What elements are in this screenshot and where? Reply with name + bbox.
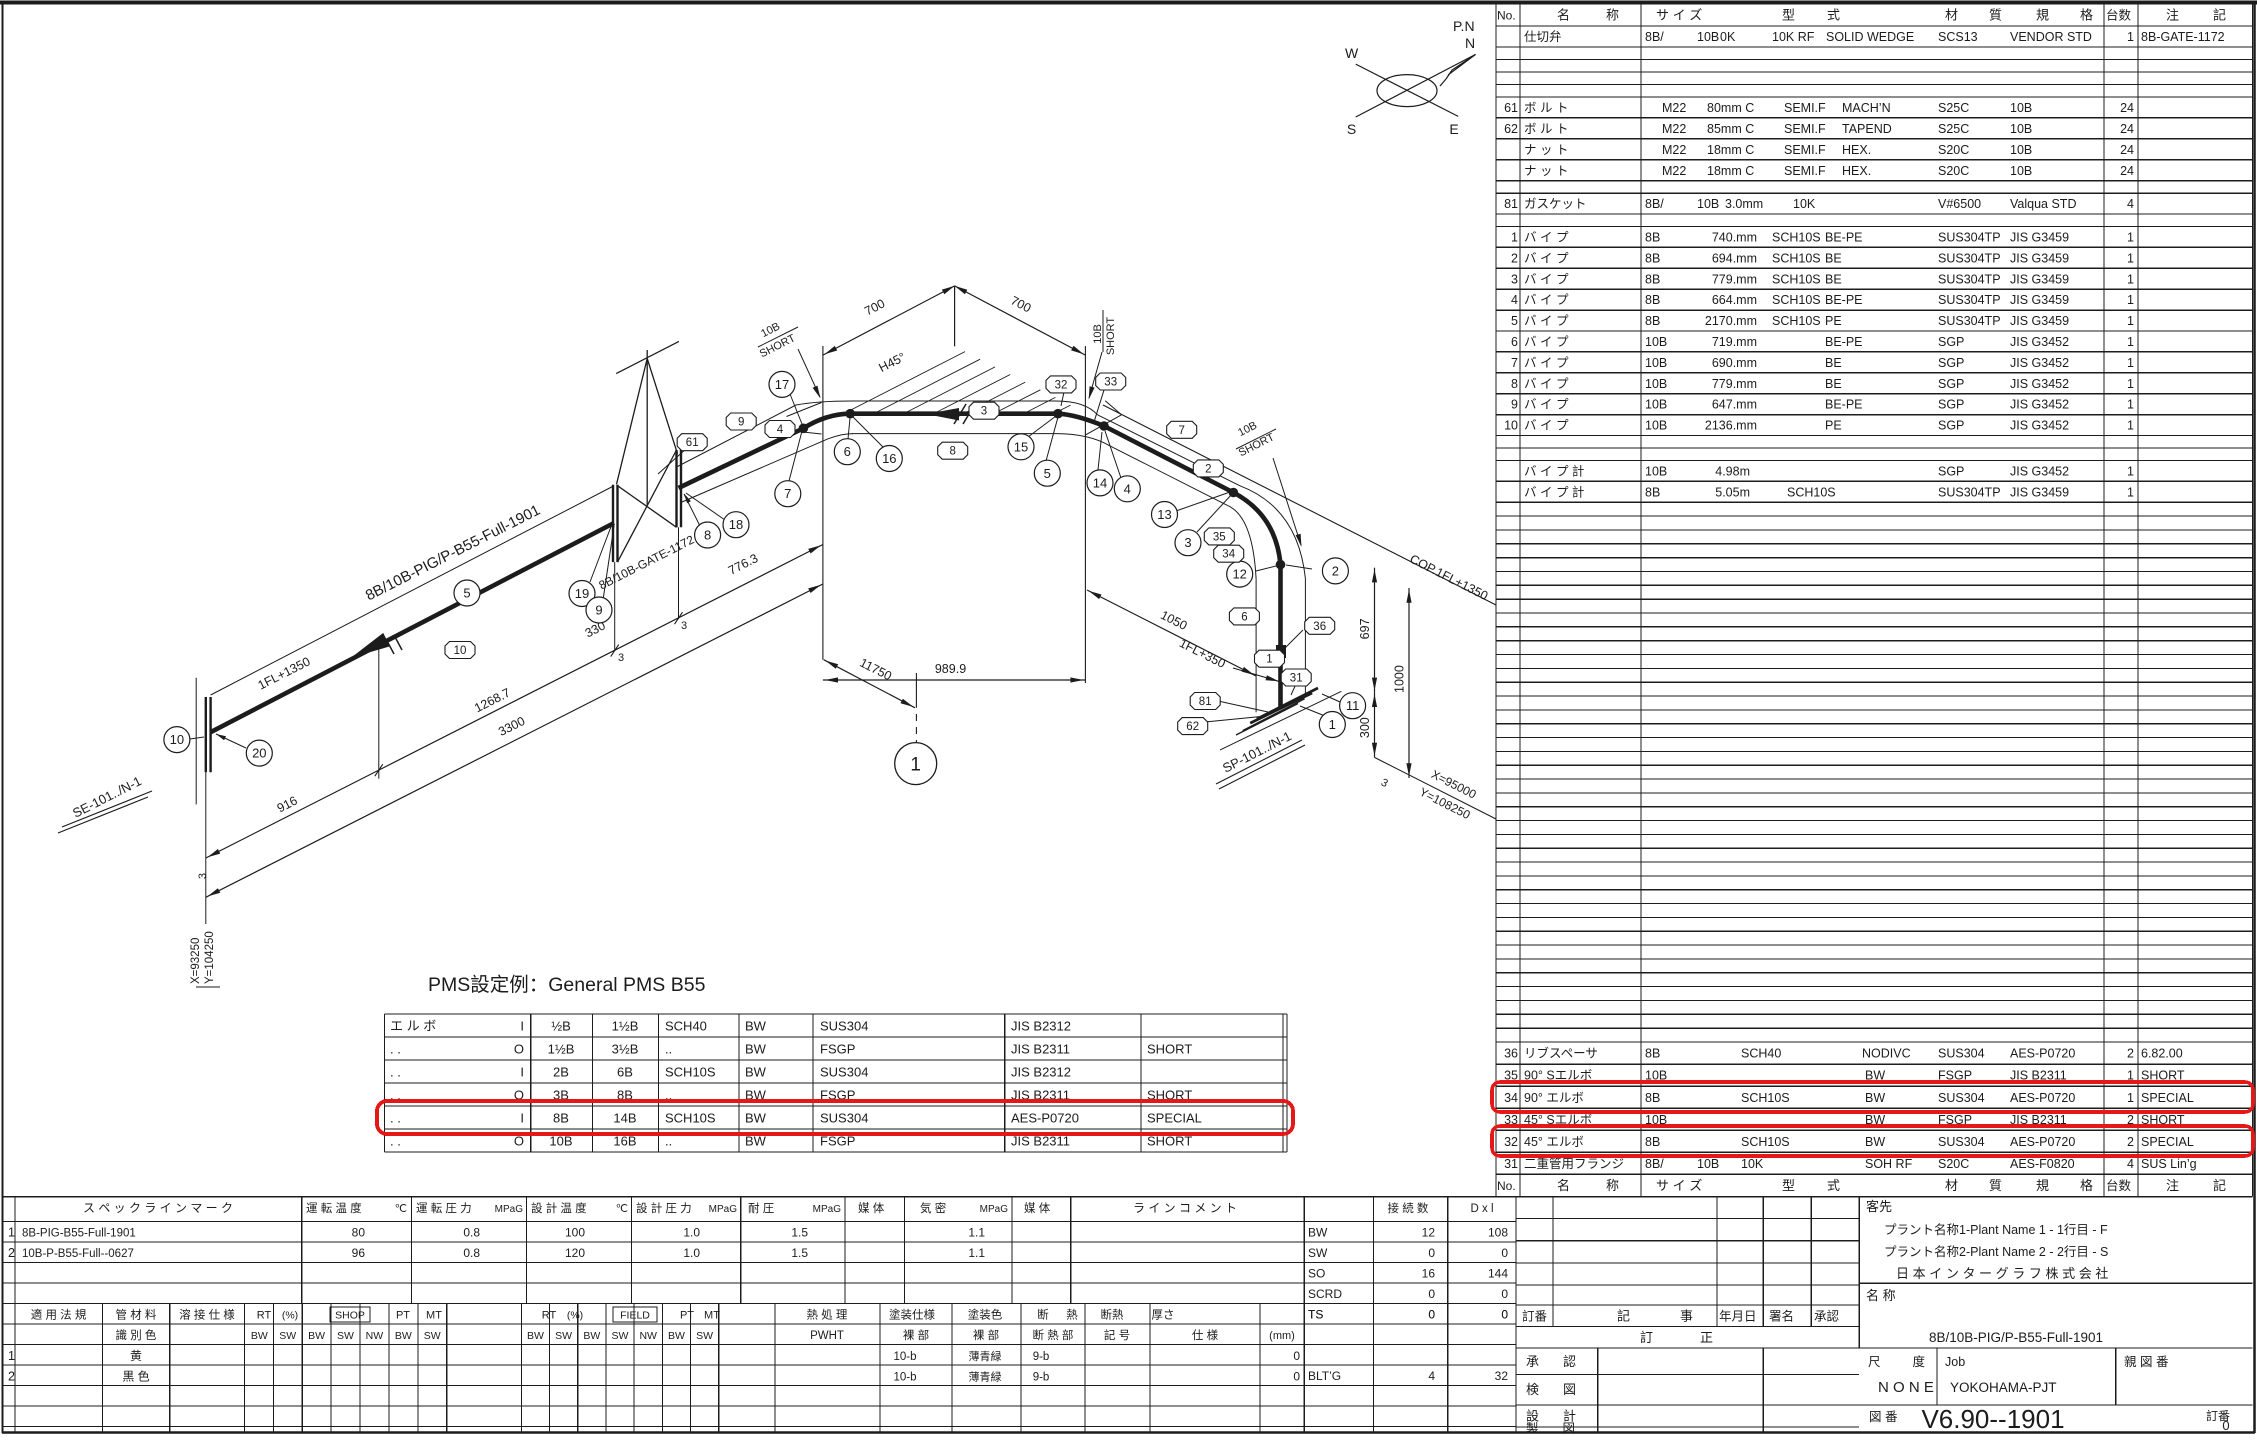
svg-text:O: O xyxy=(514,1042,524,1057)
svg-text:1: 1 xyxy=(2127,314,2134,328)
svg-text:3.0mm: 3.0mm xyxy=(1725,197,1763,211)
svg-text:型: 型 xyxy=(1782,1178,1795,1193)
svg-text:96: 96 xyxy=(352,1246,366,1260)
svg-text:0: 0 xyxy=(1293,1349,1300,1363)
svg-text:尺: 尺 xyxy=(1868,1355,1881,1369)
svg-text:1: 1 xyxy=(2127,335,2134,349)
svg-text:記: 記 xyxy=(2213,8,2226,23)
svg-text:1: 1 xyxy=(2127,293,2134,307)
svg-text:0: 0 xyxy=(1501,1246,1508,1260)
svg-text:8B/10B-PIG/P-B55-Full-1901: 8B/10B-PIG/P-B55-Full-1901 xyxy=(1929,1330,2103,1345)
svg-text:18mm C: 18mm C xyxy=(1707,143,1754,157)
svg-text:M22: M22 xyxy=(1662,164,1686,178)
svg-text:2: 2 xyxy=(2127,1047,2134,1061)
svg-text:BE: BE xyxy=(1825,252,1842,266)
svg-text:格: 格 xyxy=(2080,1178,2093,1193)
svg-text:D x l: D x l xyxy=(1471,1203,1494,1215)
svg-text:JIS G3459: JIS G3459 xyxy=(2010,314,2069,328)
svg-text:SCH10S: SCH10S xyxy=(1787,485,1836,499)
svg-text:運 転 温 度: 運 転 温 度 xyxy=(306,1201,362,1215)
svg-text:SGP: SGP xyxy=(1938,465,1964,479)
svg-text:2: 2 xyxy=(8,1370,15,1384)
svg-text:日 本 イ ン タ ー グ ラ フ 株 式 会 社: 日 本 イ ン タ ー グ ラ フ 株 式 会 社 xyxy=(1896,1266,2108,1281)
svg-text:BW: BW xyxy=(745,1065,767,1080)
svg-text:32: 32 xyxy=(1495,1369,1509,1383)
svg-text:34: 34 xyxy=(1504,1091,1518,1105)
svg-text:Y=104250: Y=104250 xyxy=(204,931,216,984)
svg-text:MACH’N: MACH’N xyxy=(1842,101,1891,115)
svg-text:8B-GATE-1172: 8B-GATE-1172 xyxy=(2141,30,2225,44)
svg-text:BW: BW xyxy=(745,1042,767,1057)
svg-text:MT: MT xyxy=(704,1310,720,1322)
svg-text:JIS G3459: JIS G3459 xyxy=(2010,485,2069,499)
svg-text:BE-PE: BE-PE xyxy=(1825,231,1863,245)
svg-text:5: 5 xyxy=(463,586,470,601)
svg-text:8B: 8B xyxy=(1645,1047,1660,1061)
svg-text:10B: 10B xyxy=(2010,101,2032,115)
svg-text:バ イ プ 計: バ イ プ 計 xyxy=(1524,464,1584,479)
svg-text:S25C: S25C xyxy=(1938,101,1969,115)
svg-text:S: S xyxy=(1347,121,1356,137)
svg-text:I: I xyxy=(520,1111,524,1126)
svg-text:10: 10 xyxy=(1504,419,1518,433)
svg-text:1: 1 xyxy=(2127,377,2134,391)
svg-text:300: 300 xyxy=(1358,717,1372,738)
svg-text:FIELD: FIELD xyxy=(620,1310,650,1322)
svg-text:FSGP: FSGP xyxy=(820,1042,855,1057)
svg-text:1: 1 xyxy=(2127,30,2134,44)
svg-text:..: .. xyxy=(665,1042,672,1057)
svg-text:1: 1 xyxy=(2127,272,2134,286)
svg-text:1.0: 1.0 xyxy=(683,1226,700,1240)
svg-text:ガスケット: ガスケット xyxy=(1524,197,1587,211)
svg-text:V6.90--1901: V6.90--1901 xyxy=(1921,1404,2064,1434)
svg-text:36: 36 xyxy=(1313,621,1326,633)
svg-text:8B/: 8B/ xyxy=(1645,30,1664,44)
svg-text:バ イ プ: バ イ プ xyxy=(1524,356,1569,370)
svg-text:P.N: P.N xyxy=(1453,18,1475,34)
svg-text:. .: . . xyxy=(390,1111,401,1126)
svg-text:材: 材 xyxy=(1945,8,1958,23)
svg-text:記: 記 xyxy=(1617,1309,1630,1324)
svg-text:認: 認 xyxy=(1563,1354,1576,1369)
svg-text:Job: Job xyxy=(1945,1355,1965,1369)
svg-text:M22: M22 xyxy=(1662,143,1686,157)
svg-text:BE-PE: BE-PE xyxy=(1825,398,1863,412)
svg-text:X=93250: X=93250 xyxy=(190,938,202,984)
svg-text:24: 24 xyxy=(2120,164,2134,178)
svg-text:SUS304TP: SUS304TP xyxy=(1938,272,2001,286)
svg-text:18mm C: 18mm C xyxy=(1707,164,1754,178)
svg-text:BW: BW xyxy=(1308,1226,1328,1240)
svg-text:台数: 台数 xyxy=(2106,1178,2132,1193)
svg-text:SEMI.F: SEMI.F xyxy=(1784,122,1826,136)
svg-text:2: 2 xyxy=(2127,1135,2134,1149)
svg-text:SUS304: SUS304 xyxy=(820,1019,868,1034)
svg-text:14: 14 xyxy=(1093,475,1107,490)
svg-text:黄: 黄 xyxy=(130,1349,142,1363)
svg-text:名: 名 xyxy=(1557,8,1570,23)
svg-text:8: 8 xyxy=(704,528,711,543)
svg-text:1: 1 xyxy=(910,755,921,776)
svg-text:事: 事 xyxy=(1680,1309,1693,1324)
svg-text:34: 34 xyxy=(1222,549,1235,561)
svg-text:1: 1 xyxy=(8,1349,15,1363)
svg-text:エ ル ボ: エ ル ボ xyxy=(390,1019,436,1034)
svg-text:2170.mm: 2170.mm xyxy=(1705,314,1757,328)
svg-text:3: 3 xyxy=(1511,272,1518,286)
svg-text:694.mm: 694.mm xyxy=(1712,252,1757,266)
svg-text:識 別 色: 識 別 色 xyxy=(116,1328,157,1342)
svg-text:0K: 0K xyxy=(1720,30,1736,44)
svg-text:SGP: SGP xyxy=(1938,398,1964,412)
svg-text:ボ ル ト: ボ ル ト xyxy=(1524,122,1568,136)
svg-text:YOKOHAMA-PJT: YOKOHAMA-PJT xyxy=(1950,1380,2057,1395)
svg-text:1: 1 xyxy=(2127,419,2134,433)
svg-text:JIS B2312: JIS B2312 xyxy=(1011,1019,1071,1034)
svg-text:図: 図 xyxy=(1562,1422,1575,1436)
svg-text:0: 0 xyxy=(2222,1418,2229,1433)
svg-text:SEMI.F: SEMI.F xyxy=(1784,143,1826,157)
svg-text:BE: BE xyxy=(1825,272,1842,286)
svg-text:10K: 10K xyxy=(1741,1157,1764,1171)
svg-text:0.8: 0.8 xyxy=(463,1246,480,1260)
svg-text:5: 5 xyxy=(1511,314,1518,328)
svg-text:PT: PT xyxy=(396,1310,410,1322)
svg-text:24: 24 xyxy=(2120,101,2134,115)
svg-text:8: 8 xyxy=(1511,377,1518,391)
svg-text:BW: BW xyxy=(668,1330,685,1342)
svg-text:JIS B2312: JIS B2312 xyxy=(1011,1065,1071,1080)
svg-text:NW: NW xyxy=(366,1330,384,1342)
svg-text:SHORT: SHORT xyxy=(1147,1042,1192,1057)
svg-text:SGP: SGP xyxy=(1938,335,1964,349)
svg-text:AES-P0720: AES-P0720 xyxy=(1011,1111,1079,1126)
svg-text:SCH40: SCH40 xyxy=(1741,1047,1781,1061)
svg-text:3: 3 xyxy=(618,652,624,664)
svg-text:規: 規 xyxy=(2036,8,2049,23)
svg-text:BW: BW xyxy=(527,1330,544,1342)
svg-text:SW: SW xyxy=(424,1330,441,1342)
svg-text:10-b: 10-b xyxy=(893,1351,916,1363)
svg-text:HEX.: HEX. xyxy=(1842,143,1871,157)
svg-text:℃: ℃ xyxy=(616,1203,628,1215)
svg-text:SW: SW xyxy=(696,1330,713,1342)
svg-text:SCS13: SCS13 xyxy=(1938,30,1978,44)
svg-text:媒 体: 媒 体 xyxy=(1024,1201,1051,1215)
svg-text:6: 6 xyxy=(844,444,851,459)
svg-text:I: I xyxy=(520,1065,524,1080)
svg-text:8B: 8B xyxy=(1645,231,1660,245)
svg-text:1½B: 1½B xyxy=(548,1042,575,1057)
svg-text:0: 0 xyxy=(1428,1287,1435,1301)
svg-text:承認: 承認 xyxy=(1814,1309,1840,1324)
svg-text:100: 100 xyxy=(565,1226,585,1240)
svg-text:E: E xyxy=(1449,121,1458,137)
svg-text:PE: PE xyxy=(1825,314,1842,328)
svg-text:85mm C: 85mm C xyxy=(1707,122,1754,136)
svg-text:31: 31 xyxy=(1290,673,1303,685)
svg-text:8B-PIG-B55-Full-1901: 8B-PIG-B55-Full-1901 xyxy=(22,1228,136,1240)
svg-text:1: 1 xyxy=(1266,654,1272,666)
svg-text:PE: PE xyxy=(1825,419,1842,433)
svg-text:規: 規 xyxy=(2036,1178,2049,1193)
svg-text:HEX.: HEX. xyxy=(1842,164,1871,178)
svg-text:SHORT: SHORT xyxy=(1105,317,1117,356)
svg-text:SEMI.F: SEMI.F xyxy=(1784,101,1826,115)
svg-text:JIS G3459: JIS G3459 xyxy=(2010,252,2069,266)
svg-text:1.0: 1.0 xyxy=(683,1246,700,1260)
svg-text:697: 697 xyxy=(1358,618,1372,639)
svg-text:度: 度 xyxy=(1912,1354,1925,1369)
svg-text:14B: 14B xyxy=(613,1111,636,1126)
svg-text:塗装色: 塗装色 xyxy=(968,1308,1003,1322)
svg-text:承: 承 xyxy=(1526,1354,1539,1369)
svg-text:17: 17 xyxy=(775,377,789,392)
svg-text:80: 80 xyxy=(352,1226,366,1240)
svg-text:8B: 8B xyxy=(1645,1091,1660,1105)
svg-text:SPECIAL: SPECIAL xyxy=(2141,1135,2194,1149)
svg-text:MPaG: MPaG xyxy=(813,1204,842,1215)
svg-text:1½B: 1½B xyxy=(612,1019,639,1034)
svg-text:検: 検 xyxy=(1526,1382,1539,1397)
svg-text:製: 製 xyxy=(1526,1422,1539,1436)
svg-text:35: 35 xyxy=(1213,531,1226,543)
svg-text:4: 4 xyxy=(2127,1157,2134,1171)
svg-text:10B: 10B xyxy=(1092,324,1104,344)
svg-text:図 番: 図 番 xyxy=(1869,1410,1898,1424)
svg-text:断 熱 部: 断 熱 部 xyxy=(1033,1328,1074,1342)
svg-text:適 用 法 規: 適 用 法 規 xyxy=(31,1308,87,1322)
svg-text:BW: BW xyxy=(1865,1135,1885,1149)
svg-text:2: 2 xyxy=(1205,463,1211,475)
svg-text:3: 3 xyxy=(981,406,987,418)
svg-text:. .: . . xyxy=(390,1042,401,1057)
svg-text:SCH10S: SCH10S xyxy=(1772,231,1821,245)
svg-text:気 密: 気 密 xyxy=(920,1201,946,1215)
svg-text:6B: 6B xyxy=(617,1065,633,1080)
svg-text:10B: 10B xyxy=(1645,465,1667,479)
svg-text:接 続 数: 接 続 数 xyxy=(1388,1201,1429,1215)
svg-text:JIS G3452: JIS G3452 xyxy=(2010,465,2069,479)
svg-text:. .: . . xyxy=(390,1065,401,1080)
svg-text:0: 0 xyxy=(1428,1308,1435,1322)
svg-text:108: 108 xyxy=(1488,1226,1508,1240)
svg-text:13: 13 xyxy=(1157,507,1171,522)
svg-text:型: 型 xyxy=(1782,8,1795,23)
svg-text:℃: ℃ xyxy=(395,1203,407,1215)
svg-text:3: 3 xyxy=(1184,535,1191,550)
svg-text:訂番: 訂番 xyxy=(1522,1309,1548,1324)
svg-text:NODIVC: NODIVC xyxy=(1862,1047,1911,1061)
svg-text:32: 32 xyxy=(1504,1135,1518,1149)
svg-text:10B: 10B xyxy=(1645,377,1667,391)
svg-text:ラ イ ン コ メ ン ト: ラ イ ン コ メ ン ト xyxy=(1133,1201,1237,1215)
svg-text:90° エルボ: 90° エルボ xyxy=(1524,1091,1584,1105)
svg-text:1.1: 1.1 xyxy=(968,1246,985,1260)
svg-text:61: 61 xyxy=(1504,101,1518,115)
svg-text:9: 9 xyxy=(595,603,602,618)
svg-text:2: 2 xyxy=(1511,252,1518,266)
svg-text:名: 名 xyxy=(1557,1178,1570,1193)
svg-text:客先: 客先 xyxy=(1866,1199,1892,1214)
svg-text:4: 4 xyxy=(2127,197,2134,211)
svg-text:N: N xyxy=(1465,35,1475,51)
svg-text:S20C: S20C xyxy=(1938,1157,1969,1171)
svg-text:SUS304: SUS304 xyxy=(1938,1135,1985,1149)
svg-text:媒 体: 媒 体 xyxy=(858,1201,885,1215)
svg-text:10B: 10B xyxy=(2010,122,2032,136)
svg-text:SW: SW xyxy=(612,1330,629,1342)
svg-text:M22: M22 xyxy=(1662,122,1686,136)
svg-text:二重管用フランジ: 二重管用フランジ xyxy=(1524,1156,1624,1171)
svg-text:ナ ッ ト: ナ ッ ト xyxy=(1524,164,1568,178)
svg-text:0.8: 0.8 xyxy=(463,1226,480,1240)
svg-text:81: 81 xyxy=(1504,197,1518,211)
svg-text:SCH10S: SCH10S xyxy=(1772,293,1821,307)
svg-text:サ イ ズ: サ イ ズ xyxy=(1656,1178,1702,1193)
svg-text:SPECIAL: SPECIAL xyxy=(1147,1111,1202,1126)
svg-text:SEMI.F: SEMI.F xyxy=(1784,164,1826,178)
svg-text:プラント名称1-Plant Name 1 - 1行目 - F: プラント名称1-Plant Name 1 - 1行目 - F xyxy=(1884,1222,2108,1237)
svg-text:正: 正 xyxy=(1700,1330,1713,1345)
svg-text:(%): (%) xyxy=(282,1310,298,1322)
svg-text:断熱: 断熱 xyxy=(1101,1308,1124,1322)
svg-text:訂: 訂 xyxy=(1640,1330,1653,1345)
svg-text:2: 2 xyxy=(8,1246,15,1260)
svg-text:10: 10 xyxy=(170,732,184,747)
svg-text:BE-PE: BE-PE xyxy=(1825,293,1863,307)
svg-text:1000: 1000 xyxy=(1393,665,1407,693)
svg-text:8B: 8B xyxy=(1645,1135,1660,1149)
svg-text:記 号: 記 号 xyxy=(1104,1328,1130,1342)
svg-text:M22: M22 xyxy=(1662,101,1686,115)
svg-text:RT: RT xyxy=(257,1310,272,1322)
svg-text:3½B: 3½B xyxy=(612,1042,639,1057)
svg-text:1.1: 1.1 xyxy=(968,1226,985,1240)
svg-text:1: 1 xyxy=(8,1226,15,1240)
svg-text:格: 格 xyxy=(2080,8,2093,23)
svg-text:JIS G3452: JIS G3452 xyxy=(2010,335,2069,349)
svg-text:W: W xyxy=(1345,45,1359,61)
svg-text:740.mm: 740.mm xyxy=(1712,231,1757,245)
svg-text:45° エルボ: 45° エルボ xyxy=(1524,1135,1584,1149)
svg-text:10B: 10B xyxy=(1645,419,1667,433)
svg-text:SCH10S: SCH10S xyxy=(1741,1091,1790,1105)
svg-text:年月日: 年月日 xyxy=(1719,1310,1757,1324)
svg-text:No.: No. xyxy=(1497,9,1516,23)
svg-text:24: 24 xyxy=(2120,122,2134,136)
svg-text:10-b: 10-b xyxy=(893,1372,916,1384)
svg-text:MPaG: MPaG xyxy=(709,1204,738,1215)
svg-text:SOH RF: SOH RF xyxy=(1865,1157,1913,1171)
svg-text:16: 16 xyxy=(1422,1267,1436,1281)
svg-text:SUS304: SUS304 xyxy=(1938,1091,1985,1105)
svg-text:JIS B2311: JIS B2311 xyxy=(1011,1042,1070,1057)
svg-text:0: 0 xyxy=(1501,1287,1508,1301)
svg-text:JIS G3452: JIS G3452 xyxy=(2010,377,2069,391)
svg-text:15: 15 xyxy=(1014,439,1028,454)
svg-text:RT: RT xyxy=(542,1310,557,1322)
svg-text:称: 称 xyxy=(1606,8,1619,23)
svg-text:SW: SW xyxy=(1308,1246,1328,1260)
svg-text:3: 3 xyxy=(197,873,209,879)
svg-text:黒 色: 黒 色 xyxy=(122,1370,149,1384)
svg-text:S20C: S20C xyxy=(1938,143,1969,157)
svg-text:SW: SW xyxy=(279,1330,296,1342)
svg-text:バ イ プ: バ イ プ xyxy=(1524,419,1569,433)
svg-text:JIS G3452: JIS G3452 xyxy=(2010,398,2069,412)
svg-text:BE: BE xyxy=(1825,377,1842,391)
svg-text:SUS304: SUS304 xyxy=(820,1111,868,1126)
svg-text:10B: 10B xyxy=(2010,143,2032,157)
svg-text:注: 注 xyxy=(2166,1178,2179,1193)
svg-text:61: 61 xyxy=(686,437,699,449)
svg-text:AES-F0820: AES-F0820 xyxy=(2010,1157,2075,1171)
svg-text:10K: 10K xyxy=(1793,197,1816,211)
svg-text:SUS304TP: SUS304TP xyxy=(1938,231,2001,245)
svg-text:V#6500: V#6500 xyxy=(1938,197,1981,211)
svg-text:1: 1 xyxy=(2127,398,2134,412)
svg-text:32: 32 xyxy=(1055,379,1068,391)
svg-text:7: 7 xyxy=(784,486,791,501)
svg-text:10B: 10B xyxy=(1645,398,1667,412)
svg-text:質: 質 xyxy=(1989,8,2002,23)
svg-text:779.mm: 779.mm xyxy=(1712,272,1757,286)
svg-text:719.mm: 719.mm xyxy=(1712,335,1757,349)
svg-text:1: 1 xyxy=(2127,1091,2134,1105)
svg-text:1: 1 xyxy=(1511,231,1518,245)
svg-text:8B: 8B xyxy=(1645,485,1660,499)
svg-text:仕切弁: 仕切弁 xyxy=(1524,29,1562,44)
svg-text:SUS304: SUS304 xyxy=(1938,1047,1985,1061)
svg-text:図: 図 xyxy=(1563,1382,1576,1397)
svg-text:1.5: 1.5 xyxy=(791,1246,808,1260)
svg-text:NW: NW xyxy=(639,1330,657,1342)
svg-text:664.mm: 664.mm xyxy=(1712,293,1757,307)
svg-text:断: 断 xyxy=(1037,1308,1049,1322)
svg-text:式: 式 xyxy=(1827,8,1840,23)
svg-text:9: 9 xyxy=(738,417,744,429)
svg-text:19: 19 xyxy=(575,586,589,601)
svg-text:AES-P0720: AES-P0720 xyxy=(2010,1091,2075,1105)
svg-text:リブスペーサ: リブスペーサ xyxy=(1524,1046,1598,1061)
svg-text:厚さ: 厚さ xyxy=(1152,1309,1175,1322)
svg-text:BW: BW xyxy=(395,1330,412,1342)
svg-text:31: 31 xyxy=(1504,1157,1518,1171)
svg-text:SUS Lin’g: SUS Lin’g xyxy=(2141,1157,2197,1171)
svg-text:6: 6 xyxy=(1241,611,1247,623)
svg-text:称: 称 xyxy=(1606,1178,1619,1193)
svg-text:バ イ プ: バ イ プ xyxy=(1524,293,1569,307)
svg-text:SGP: SGP xyxy=(1938,356,1964,370)
svg-text:設 計 圧 力: 設 計 圧 力 xyxy=(636,1201,692,1215)
svg-text:8B: 8B xyxy=(1645,272,1660,286)
svg-text:署名: 署名 xyxy=(1769,1309,1794,1324)
svg-text:TS: TS xyxy=(1308,1308,1323,1322)
svg-text:989.9: 989.9 xyxy=(935,662,966,676)
svg-text:5.05m: 5.05m xyxy=(1715,485,1750,499)
svg-text:80mm C: 80mm C xyxy=(1707,101,1754,115)
svg-text:ボ ル ト: ボ ル ト xyxy=(1524,101,1568,115)
svg-text:5: 5 xyxy=(1044,466,1051,481)
svg-text:BLT’G: BLT’G xyxy=(1308,1369,1341,1383)
svg-text:MPaG: MPaG xyxy=(980,1204,1009,1215)
svg-text:BW: BW xyxy=(308,1330,325,1342)
svg-text:1: 1 xyxy=(2127,252,2134,266)
svg-text:式: 式 xyxy=(1827,1178,1840,1193)
svg-text:BE: BE xyxy=(1825,356,1842,370)
